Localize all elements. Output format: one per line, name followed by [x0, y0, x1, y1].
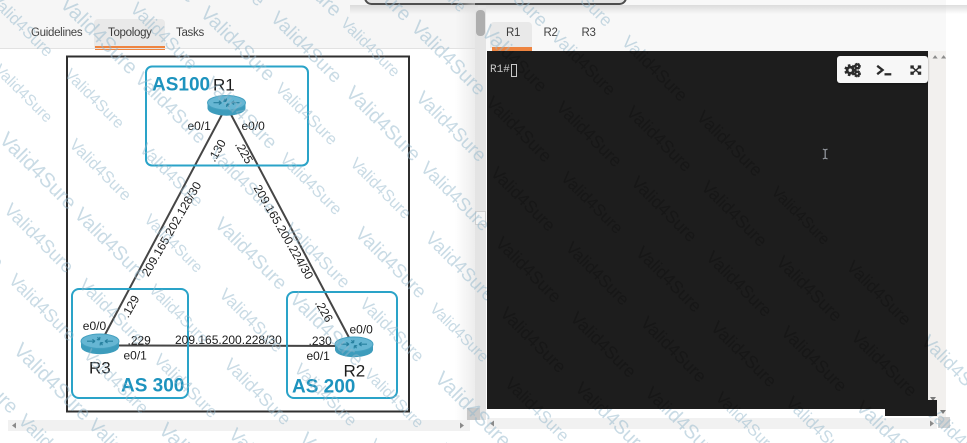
svg-text:Valid4Sure: Valid4Sure — [847, 327, 921, 401]
svg-text:Valid4Sure: Valid4Sure — [918, 331, 928, 405]
svg-text:Valid4Sure: Valid4Sure — [642, 383, 716, 409]
svg-text:Valid4Sure: Valid4Sure — [922, 402, 928, 409]
svg-text:Valid4Sure: Valid4Sure — [698, 177, 772, 251]
svg-text:R1: R1 — [213, 76, 235, 95]
svg-text:AS 300: AS 300 — [121, 376, 184, 397]
svg-text:.226: .226 — [312, 297, 336, 325]
svg-text:Valid4Sure: Valid4Sure — [707, 317, 781, 391]
svg-text:Valid4Sure: Valid4Sure — [637, 312, 711, 386]
svg-text:Valid4Sure: Valid4Sure — [496, 303, 570, 377]
svg-text:Valid4Sure: Valid4Sure — [777, 322, 851, 396]
svg-text:Valid4Sure: Valid4Sure — [618, 51, 692, 105]
svg-text:Valid4Sure: Valid4Sure — [782, 392, 855, 409]
svg-text:Valid4Sure: Valid4Sure — [852, 397, 926, 409]
svg-text:Valid4Sure: Valid4Sure — [623, 102, 697, 176]
svg-text:Valid4Sure: Valid4Sure — [702, 247, 776, 321]
svg-text:.230: .230 — [309, 334, 333, 348]
svg-text:e0/0: e0/0 — [350, 323, 374, 337]
svg-text:Valid4Sure: Valid4Sure — [487, 163, 560, 236]
svg-text:Valid4Sure: Valid4Sure — [712, 389, 781, 409]
svg-text:.229: .229 — [128, 334, 152, 348]
svg-text:Valid4Sure: Valid4Sure — [487, 228, 495, 302]
svg-text:R3: R3 — [89, 359, 111, 378]
svg-text:Valid4Sure: Valid4Sure — [768, 184, 833, 249]
svg-text:Valid4Sure: Valid4Sure — [627, 172, 701, 246]
svg-text:R2: R2 — [344, 362, 366, 381]
svg-text:e0/1: e0/1 — [307, 349, 331, 363]
svg-text:.225: .225 — [232, 139, 256, 167]
svg-text:Valid4Sure: Valid4Sure — [562, 238, 633, 309]
svg-text:AS100: AS100 — [152, 75, 210, 96]
svg-text:e0/0: e0/0 — [242, 119, 266, 133]
svg-text:Valid4Sure: Valid4Sure — [492, 233, 566, 307]
svg-text:209.165.200.224/30: 209.165.200.224/30 — [251, 182, 317, 282]
svg-text:209.165.202.128/30: 209.165.202.128/30 — [139, 179, 205, 279]
svg-text:e0/0: e0/0 — [83, 319, 107, 333]
svg-text:.129: .129 — [119, 293, 143, 321]
svg-text:Valid4Sure: Valid4Sure — [632, 242, 706, 316]
svg-text:Valid4Sure: Valid4Sure — [501, 374, 573, 409]
svg-text:Valid4Sure: Valid4Sure — [487, 368, 505, 409]
svg-text:Valid4Sure: Valid4Sure — [557, 169, 626, 238]
svg-text:Valid4Sure: Valid4Sure — [487, 300, 492, 366]
svg-text:Valid4Sure: Valid4Sure — [567, 308, 641, 382]
svg-text:Valid4Sure: Valid4Sure — [571, 378, 645, 409]
svg-text:Valid4Sure: Valid4Sure — [843, 256, 916, 329]
svg-text:209.165.200.228/30: 209.165.200.228/30 — [175, 333, 282, 347]
svg-text:Valid4Sure: Valid4Sure — [693, 107, 767, 181]
svg-text:Valid4Sure: Valid4Sure — [552, 97, 626, 171]
svg-text:e0/1: e0/1 — [124, 349, 148, 363]
svg-text:Valid4Sure: Valid4Sure — [772, 252, 846, 326]
svg-text:Valid4Sure: Valid4Sure — [487, 158, 490, 232]
svg-text:Valid4Sure: Valid4Sure — [548, 51, 620, 99]
svg-text:e0/1: e0/1 — [188, 119, 212, 133]
svg-text:Valid4Sure: Valid4Sure — [487, 92, 556, 166]
